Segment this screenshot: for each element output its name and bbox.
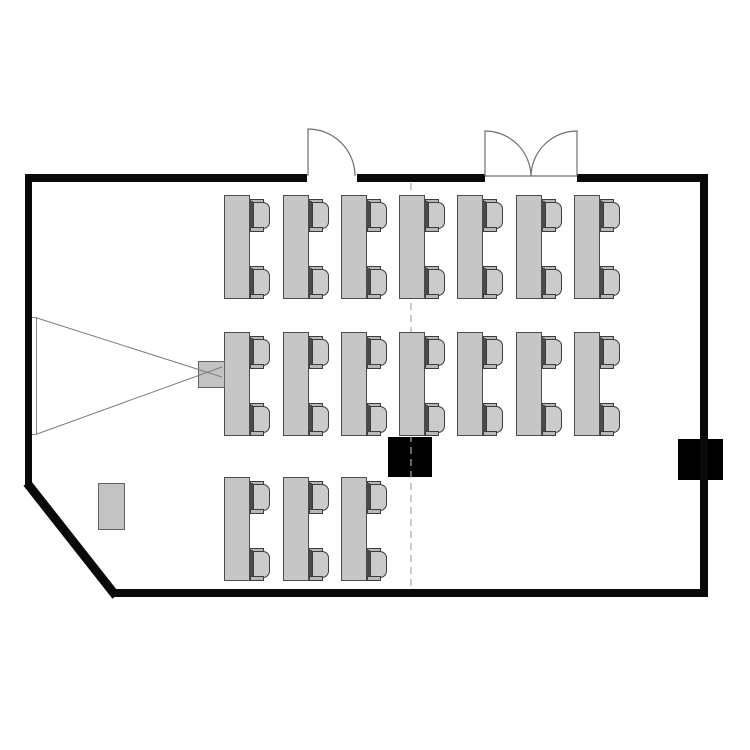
desk-r2-c2 xyxy=(283,332,309,436)
chair-armrest-bottom xyxy=(542,431,556,436)
chair-seat xyxy=(253,339,270,366)
chair-r1-c7-s1 xyxy=(599,199,621,232)
chair-seat xyxy=(545,202,562,229)
chair-seat xyxy=(312,551,329,578)
chair-armrest-bottom xyxy=(542,227,556,232)
chair-armrest-bottom xyxy=(367,227,381,232)
projector xyxy=(198,361,225,388)
desk-r3-c3 xyxy=(341,477,367,581)
chair-r1-c3-s1 xyxy=(366,199,388,232)
chair-armrest-bottom xyxy=(483,227,497,232)
chair-seat xyxy=(428,406,445,433)
chair-seat xyxy=(253,484,270,511)
chair-armrest-bottom xyxy=(367,294,381,299)
chair-seat xyxy=(253,406,270,433)
desk-r2-c5 xyxy=(457,332,483,436)
desk-r3-c1 xyxy=(224,477,250,581)
chair-r3-c1-s2 xyxy=(249,548,271,581)
chair-seat xyxy=(603,269,620,296)
chair-seat xyxy=(603,202,620,229)
chair-r3-c3-s2 xyxy=(366,548,388,581)
chair-r3-c3-s1 xyxy=(366,481,388,514)
chair-r2-c4-s1 xyxy=(424,336,446,369)
chair-r1-c4-s1 xyxy=(424,199,446,232)
chair-armrest-bottom xyxy=(250,431,264,436)
chair-r3-c2-s1 xyxy=(308,481,330,514)
chair-r2-c5-s2 xyxy=(482,403,504,436)
chair-armrest-bottom xyxy=(483,431,497,436)
chair-seat xyxy=(370,202,387,229)
chair-armrest-bottom xyxy=(542,364,556,369)
chair-r2-c6-s1 xyxy=(541,336,563,369)
chair-armrest-bottom xyxy=(425,431,439,436)
storage-cabinet xyxy=(98,483,125,530)
chair-r1-c7-s2 xyxy=(599,266,621,299)
chair-seat xyxy=(253,269,270,296)
chair-seat xyxy=(428,269,445,296)
chair-seat xyxy=(486,202,503,229)
chair-armrest-bottom xyxy=(250,509,264,514)
chair-armrest-bottom xyxy=(309,294,323,299)
chair-r2-c4-s2 xyxy=(424,403,446,436)
chair-seat xyxy=(312,339,329,366)
chair-r1-c1-s2 xyxy=(249,266,271,299)
desk-r1-c2 xyxy=(283,195,309,299)
chair-r2-c7-s1 xyxy=(599,336,621,369)
chair-armrest-bottom xyxy=(250,227,264,232)
desk-r1-c6 xyxy=(516,195,542,299)
chair-r3-c1-s1 xyxy=(249,481,271,514)
chair-r1-c6-s2 xyxy=(541,266,563,299)
desk-r1-c7 xyxy=(574,195,600,299)
desk-r1-c1 xyxy=(224,195,250,299)
chair-armrest-bottom xyxy=(309,509,323,514)
desk-r2-c7 xyxy=(574,332,600,436)
chair-r1-c5-s1 xyxy=(482,199,504,232)
chair-armrest-bottom xyxy=(483,294,497,299)
chair-r1-c2-s2 xyxy=(308,266,330,299)
chair-r2-c2-s2 xyxy=(308,403,330,436)
chair-seat xyxy=(486,339,503,366)
chair-r2-c3-s1 xyxy=(366,336,388,369)
chair-r2-c5-s1 xyxy=(482,336,504,369)
chair-seat xyxy=(370,339,387,366)
chair-seat xyxy=(370,269,387,296)
chair-seat xyxy=(312,202,329,229)
chair-armrest-bottom xyxy=(309,431,323,436)
chair-armrest-bottom xyxy=(600,227,614,232)
chair-seat xyxy=(312,269,329,296)
chair-r2-c1-s1 xyxy=(249,336,271,369)
chair-armrest-bottom xyxy=(542,294,556,299)
chair-seat xyxy=(545,406,562,433)
desk-r2-c4 xyxy=(399,332,425,436)
chair-armrest-bottom xyxy=(425,364,439,369)
chair-seat xyxy=(486,406,503,433)
projection-screen xyxy=(31,317,37,435)
chair-r2-c2-s1 xyxy=(308,336,330,369)
chair-seat xyxy=(312,406,329,433)
chair-armrest-bottom xyxy=(600,294,614,299)
desk-r1-c3 xyxy=(341,195,367,299)
chair-r1-c2-s1 xyxy=(308,199,330,232)
desk-r3-c2 xyxy=(283,477,309,581)
chair-r1-c5-s2 xyxy=(482,266,504,299)
desk-r1-c5 xyxy=(457,195,483,299)
chair-armrest-bottom xyxy=(367,509,381,514)
chair-seat xyxy=(428,339,445,366)
chair-seat xyxy=(370,551,387,578)
chair-r2-c3-s2 xyxy=(366,403,388,436)
chair-seat xyxy=(545,339,562,366)
chair-r2-c6-s2 xyxy=(541,403,563,436)
chair-armrest-bottom xyxy=(250,364,264,369)
furniture-layer xyxy=(0,0,750,750)
chair-r2-c1-s2 xyxy=(249,403,271,436)
chair-armrest-bottom xyxy=(367,431,381,436)
chair-armrest-bottom xyxy=(367,576,381,581)
chair-seat xyxy=(603,339,620,366)
chair-armrest-bottom xyxy=(600,364,614,369)
chair-armrest-bottom xyxy=(425,294,439,299)
chair-r3-c2-s2 xyxy=(308,548,330,581)
chair-seat xyxy=(603,406,620,433)
chair-armrest-bottom xyxy=(367,364,381,369)
chair-armrest-bottom xyxy=(425,227,439,232)
desk-r2-c1 xyxy=(224,332,250,436)
chair-r1-c4-s2 xyxy=(424,266,446,299)
chair-seat xyxy=(486,269,503,296)
chair-r1-c1-s1 xyxy=(249,199,271,232)
chair-seat xyxy=(370,484,387,511)
desk-r1-c4 xyxy=(399,195,425,299)
chair-seat xyxy=(253,551,270,578)
chair-seat xyxy=(545,269,562,296)
chair-seat xyxy=(253,202,270,229)
floor-plan-canvas xyxy=(0,0,750,750)
chair-r1-c3-s2 xyxy=(366,266,388,299)
chair-armrest-bottom xyxy=(600,431,614,436)
chair-seat xyxy=(370,406,387,433)
desk-r2-c3 xyxy=(341,332,367,436)
chair-armrest-bottom xyxy=(250,576,264,581)
chair-r2-c7-s2 xyxy=(599,403,621,436)
desk-r2-c6 xyxy=(516,332,542,436)
chair-armrest-bottom xyxy=(309,576,323,581)
chair-armrest-bottom xyxy=(309,227,323,232)
chair-armrest-bottom xyxy=(309,364,323,369)
chair-armrest-bottom xyxy=(483,364,497,369)
chair-armrest-bottom xyxy=(250,294,264,299)
chair-r1-c6-s1 xyxy=(541,199,563,232)
chair-seat xyxy=(428,202,445,229)
chair-seat xyxy=(312,484,329,511)
